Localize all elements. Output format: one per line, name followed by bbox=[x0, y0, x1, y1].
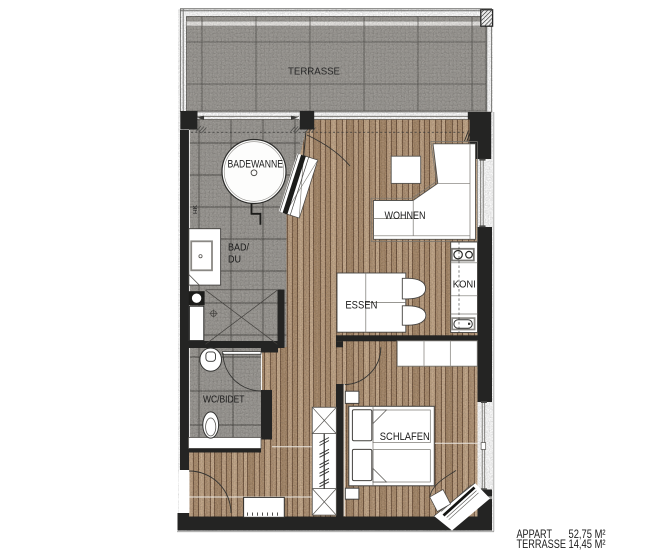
svg-text:WOHNEN: WOHNEN bbox=[385, 210, 426, 222]
svg-text:BADEWANNE: BADEWANNE bbox=[228, 158, 284, 170]
svg-text:TERRASSE: TERRASSE bbox=[517, 537, 567, 550]
svg-text:WC/BIDET: WC/BIDET bbox=[203, 394, 245, 405]
svg-text:ESSEN: ESSEN bbox=[345, 299, 377, 311]
svg-text:DU: DU bbox=[228, 255, 241, 266]
svg-text:14,45 M²: 14,45 M² bbox=[569, 537, 606, 550]
svg-text:KONI: KONI bbox=[453, 279, 476, 290]
svg-text:BAD/: BAD/ bbox=[228, 243, 249, 254]
svg-text:HK: HK bbox=[193, 205, 199, 214]
svg-text:SCHLAFEN: SCHLAFEN bbox=[380, 431, 430, 443]
